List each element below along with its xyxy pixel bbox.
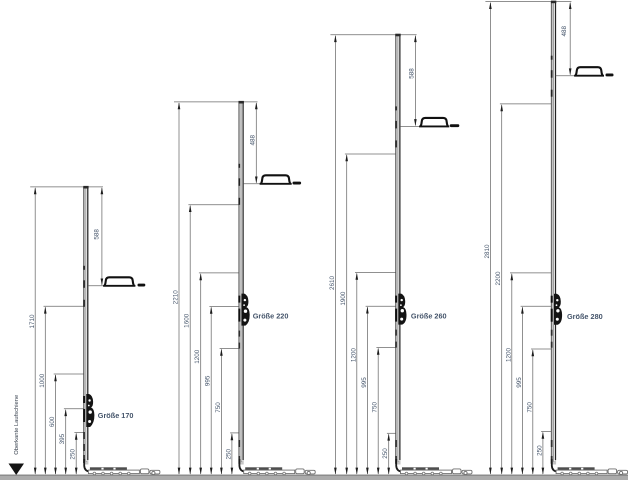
svg-text:588: 588 — [408, 68, 415, 79]
svg-text:1900: 1900 — [340, 291, 347, 306]
svg-text:1710: 1710 — [29, 314, 36, 329]
svg-text:488: 488 — [561, 25, 568, 36]
svg-text:Größe 220: Größe 220 — [253, 311, 289, 320]
svg-text:Größe 260: Größe 260 — [411, 311, 447, 320]
svg-text:488: 488 — [249, 134, 256, 145]
svg-text:2810: 2810 — [484, 244, 491, 259]
svg-text:1200: 1200 — [350, 348, 357, 363]
svg-text:995: 995 — [361, 377, 368, 388]
svg-text:Größe 170: Größe 170 — [98, 411, 134, 420]
svg-text:250: 250 — [536, 445, 543, 456]
svg-text:750: 750 — [215, 402, 222, 413]
svg-text:995: 995 — [205, 375, 212, 386]
svg-text:Oberkante Laufschiene: Oberkante Laufschiene — [14, 395, 20, 455]
svg-text:395: 395 — [59, 433, 66, 444]
svg-text:250: 250 — [225, 448, 232, 459]
svg-text:600: 600 — [49, 416, 56, 427]
svg-text:1600: 1600 — [184, 313, 191, 328]
svg-text:2610: 2610 — [329, 276, 336, 291]
svg-text:750: 750 — [372, 402, 379, 413]
svg-text:750: 750 — [526, 402, 533, 413]
svg-text:2200: 2200 — [495, 271, 502, 286]
svg-text:2210: 2210 — [173, 290, 180, 305]
svg-text:1200: 1200 — [505, 348, 512, 363]
svg-text:995: 995 — [516, 377, 523, 388]
svg-text:250: 250 — [70, 449, 77, 460]
svg-text:1000: 1000 — [39, 373, 46, 388]
svg-text:588: 588 — [93, 229, 100, 240]
svg-text:250: 250 — [382, 448, 389, 459]
svg-text:Größe 280: Größe 280 — [567, 312, 603, 321]
svg-text:1200: 1200 — [194, 349, 201, 364]
